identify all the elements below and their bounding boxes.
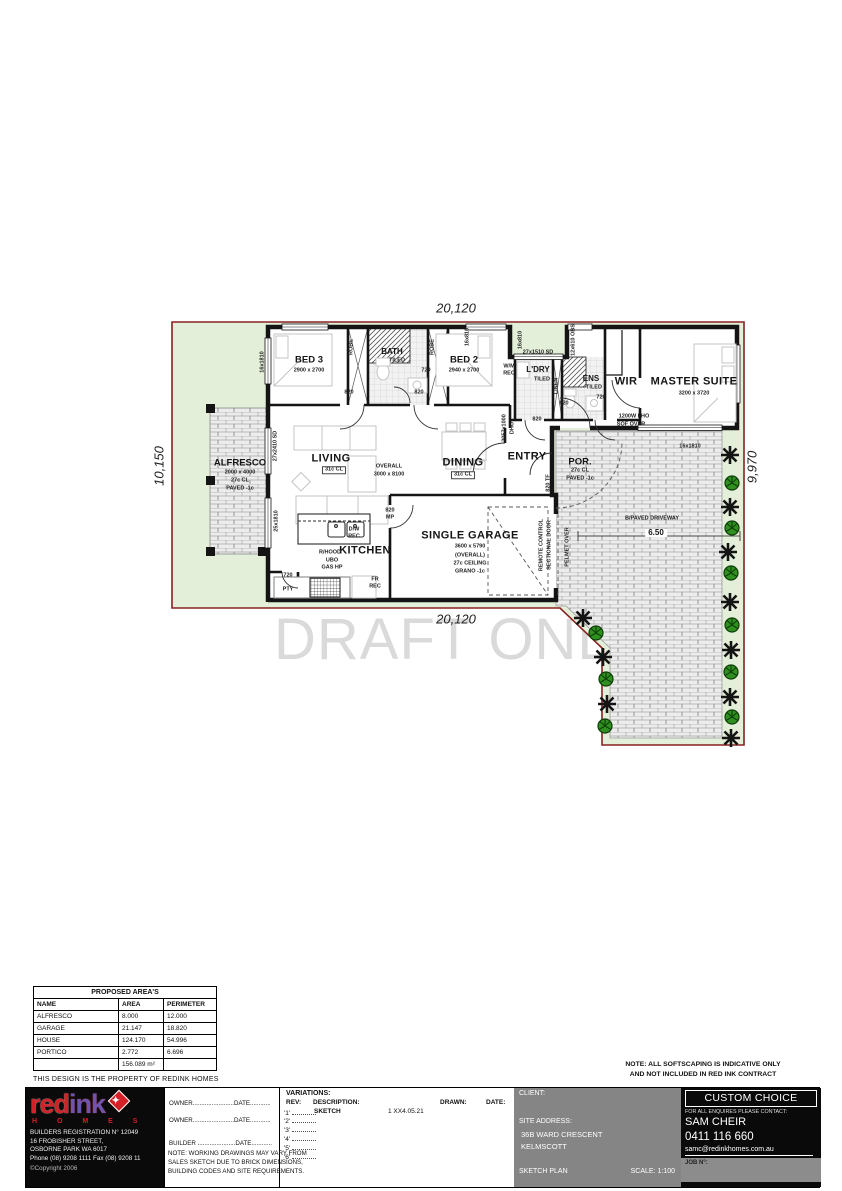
drawing-type: SKETCH PLAN xyxy=(519,1168,568,1175)
variation-rev-row: '2' xyxy=(284,1116,316,1125)
variations-panel: VARIATIONS: REV: DESCRIPTION: DRAWN: DAT… xyxy=(279,1088,514,1187)
client-label: CLIENT: xyxy=(519,1090,545,1097)
builder-info-line: OSBORNE PARK WA 6017 xyxy=(30,1146,164,1155)
signature-line: OWNER........................DATE.......… xyxy=(169,1100,271,1107)
variations-col-drawn: DRAWN: xyxy=(440,1099,467,1106)
variation-rev-row: '4' xyxy=(284,1134,316,1143)
areas-col-area: AREA xyxy=(119,999,164,1011)
site-address-line2: KELMSCOTT xyxy=(521,1142,567,1151)
redink-diamond-icon: ✦ xyxy=(108,1090,131,1113)
floor-plan-drawing xyxy=(170,300,770,770)
site-address-label: SITE ADDRESS: xyxy=(519,1118,572,1125)
softscaping-note-line: AND NOT INCLUDED IN RED INK CONTRACT xyxy=(583,1070,823,1080)
builder-info: BUILDERS REGISTRATION N° 1204916 FROBISH… xyxy=(30,1129,164,1163)
working-drawings-note: NOTE: WORKING DRAWINGS MAY VARY FROMSALE… xyxy=(168,1149,307,1176)
site-address-line1: 36B WARD CRESCENT xyxy=(521,1130,602,1139)
table-row: ALFRESCO8.00012.000 xyxy=(34,1011,217,1023)
client-panel: CLIENT: SITE ADDRESS: 36B WARD CRESCENT … xyxy=(514,1088,681,1187)
sketch-plan-sheet: DRAFT ONLY xyxy=(0,0,842,1191)
builder-info-line: 16 FROBISHER STREET, xyxy=(30,1138,164,1147)
logo-ink-text: ink xyxy=(69,1089,105,1119)
driveway-paving xyxy=(556,431,722,738)
working-drawings-note-line: SALES SKETCH DUE TO BRICK DIMENSIONS, xyxy=(168,1158,307,1167)
variations-col-description: DESCRIPTION: xyxy=(313,1099,360,1106)
logo-red-text: red xyxy=(30,1089,69,1119)
areas-col-name: NAME xyxy=(34,999,119,1011)
builder-info-line: Phone (08) 9208 1111 Fax (08) 9208 11 xyxy=(30,1155,164,1164)
variations-heading: VARIATIONS: xyxy=(286,1090,330,1097)
brand-badge: CUSTOM CHOICE xyxy=(685,1090,817,1107)
title-block: redink✦ H O M E S BUILDERS REGISTRATION … xyxy=(25,1087,820,1188)
builder-logo-panel: redink✦ H O M E S BUILDERS REGISTRATION … xyxy=(26,1088,164,1187)
signature-line: BUILDER ......................DATE......… xyxy=(169,1140,272,1147)
plan-label-dim-left: 10,150 xyxy=(153,446,166,486)
star-icon: ✦ xyxy=(112,1088,119,1114)
copyright-line: ©Copyright 2006 xyxy=(30,1165,164,1172)
builder-info-line: BUILDERS REGISTRATION N° 12049 xyxy=(30,1129,164,1138)
contact-name: SAM CHEIR xyxy=(685,1116,746,1128)
ensuite-shower xyxy=(562,357,586,387)
signatures-panel: OWNER........................DATE.......… xyxy=(164,1088,279,1187)
alfresco-paving xyxy=(210,408,268,554)
working-drawings-note-line: BUILDING CODES AND SITE REQUIREMENTS. xyxy=(168,1167,307,1176)
areas-col-perimeter: PERIMETER xyxy=(164,999,217,1011)
variation-rev-row: '3' xyxy=(284,1125,316,1134)
table-row: GARAGE21.14718.820 xyxy=(34,1023,217,1035)
signature-line: OWNER........................DATE.......… xyxy=(169,1117,271,1124)
table-total-row: 156.089 m² xyxy=(34,1059,217,1071)
cooktop xyxy=(310,578,340,597)
areas-table-title: PROPOSED AREA'S xyxy=(34,987,217,999)
contact-prompt: FOR ALL ENQUIRES PLEASE CONTACT: xyxy=(685,1109,787,1115)
job-number-label: JOB N°: xyxy=(685,1160,821,1166)
variations-col-date: DATE: xyxy=(486,1099,505,1106)
job-number-area: JOB N°: xyxy=(681,1158,821,1182)
logo-homes-text: H O M E S xyxy=(32,1118,164,1125)
drawing-scale: SCALE: 1:100 xyxy=(631,1168,675,1175)
contact-panel: CUSTOM CHOICE FOR ALL ENQUIRES PLEASE CO… xyxy=(681,1088,821,1187)
proposed-areas-table: PROPOSED AREA'S NAME AREA PERIMETER ALFR… xyxy=(33,986,217,1071)
working-drawings-note-line: NOTE: WORKING DRAWINGS MAY VARY FROM xyxy=(168,1149,307,1158)
table-row: HOUSE124.17054.996 xyxy=(34,1035,217,1047)
variation-code-1: 1 XX4.05.21 xyxy=(388,1108,424,1115)
variation-description-1: SKETCH xyxy=(314,1108,341,1115)
redink-logo: redink✦ xyxy=(30,1091,164,1117)
table-row: PORTICO2.7726.696 xyxy=(34,1047,217,1059)
contact-email: samc@redinkhomes.com.au xyxy=(685,1146,813,1156)
softscaping-note: NOTE: ALL SOFTSCAPING IS INDICATIVE ONLY… xyxy=(583,1060,823,1080)
softscaping-note-line: NOTE: ALL SOFTSCAPING IS INDICATIVE ONLY xyxy=(583,1060,823,1070)
proposed-areas: PROPOSED AREA'S NAME AREA PERIMETER ALFR… xyxy=(33,986,217,1071)
variations-col-rev: REV: xyxy=(286,1099,301,1106)
property-note: THIS DESIGN IS THE PROPERTY OF REDINK HO… xyxy=(33,1076,219,1083)
contact-phone: 0411 116 660 xyxy=(685,1131,754,1143)
